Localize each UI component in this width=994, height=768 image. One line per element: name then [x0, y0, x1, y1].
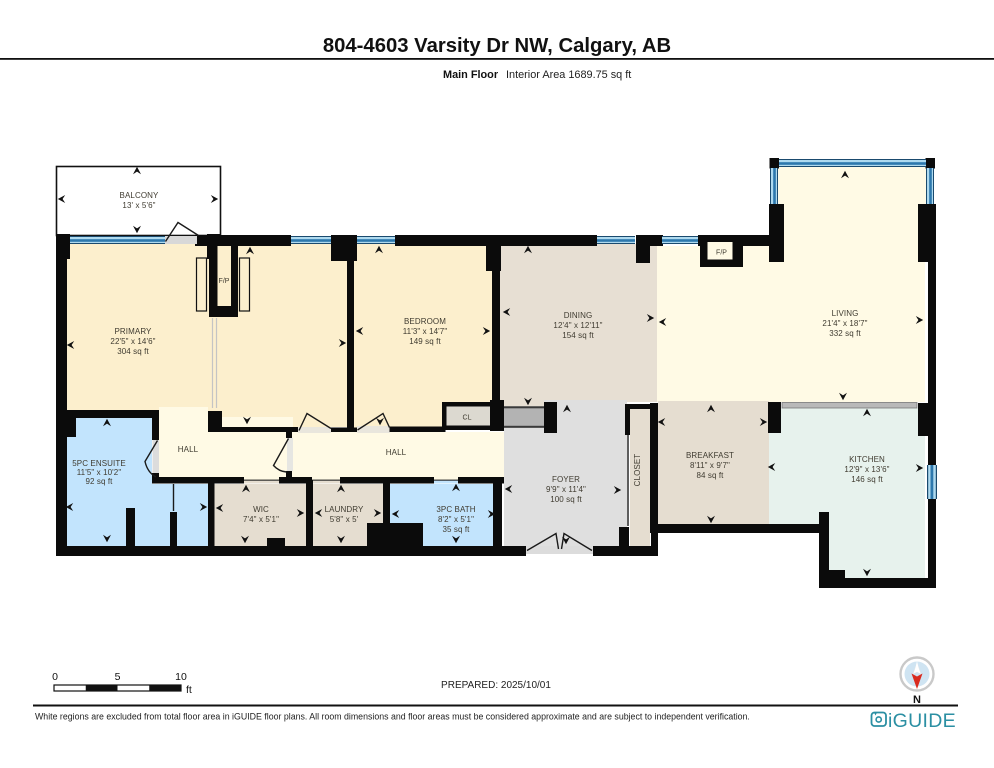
- svg-text:HALL: HALL: [386, 448, 407, 457]
- svg-text:804-4603 Varsity Dr NW, Calgar: 804-4603 Varsity Dr NW, Calgary, AB: [323, 35, 671, 57]
- svg-text:BEDROOM: BEDROOM: [404, 317, 446, 326]
- svg-text:ft: ft: [186, 684, 192, 696]
- svg-text:Interior Area 1689.75 sq ft: Interior Area 1689.75 sq ft: [506, 69, 631, 81]
- svg-text:5PC ENSUITE: 5PC ENSUITE: [72, 459, 126, 468]
- svg-text:HALL: HALL: [178, 445, 199, 454]
- svg-text:5'8" x 5': 5'8" x 5': [330, 515, 359, 524]
- svg-text:CL: CL: [463, 415, 472, 422]
- svg-text:332 sq ft: 332 sq ft: [829, 329, 861, 338]
- svg-text:149 sq ft: 149 sq ft: [409, 337, 441, 346]
- svg-text:CLOSET: CLOSET: [633, 454, 642, 487]
- svg-text:5: 5: [115, 671, 121, 683]
- svg-text:22'5" x 14'6": 22'5" x 14'6": [110, 337, 155, 346]
- svg-text:9'9" x 11'4": 9'9" x 11'4": [546, 485, 586, 494]
- svg-text:White regions are excluded fro: White regions are excluded from total fl…: [35, 712, 750, 722]
- svg-text:7'4" x 5'1": 7'4" x 5'1": [243, 515, 279, 524]
- svg-text:10: 10: [175, 671, 187, 683]
- svg-text:11'5" x 10'2": 11'5" x 10'2": [77, 468, 122, 477]
- svg-text:0: 0: [52, 671, 58, 683]
- svg-text:LAUNDRY: LAUNDRY: [325, 505, 364, 514]
- svg-text:154 sq ft: 154 sq ft: [562, 331, 594, 340]
- svg-text:12'9" x 13'6": 12'9" x 13'6": [844, 465, 889, 474]
- svg-text:92 sq ft: 92 sq ft: [85, 477, 113, 486]
- svg-text:LIVING: LIVING: [832, 309, 859, 318]
- svg-text:Main Floor: Main Floor: [443, 69, 499, 81]
- svg-text:iGUIDE: iGUIDE: [888, 710, 956, 732]
- svg-text:100 sq ft: 100 sq ft: [550, 495, 582, 504]
- svg-text:146 sq ft: 146 sq ft: [851, 475, 883, 484]
- svg-text:12'4" x 12'11": 12'4" x 12'11": [553, 321, 602, 330]
- svg-text:13' x 5'6": 13' x 5'6": [122, 201, 155, 210]
- svg-text:KITCHEN: KITCHEN: [849, 455, 885, 464]
- svg-text:FOYER: FOYER: [552, 475, 580, 484]
- svg-text:8'2" x 5'1": 8'2" x 5'1": [438, 515, 474, 524]
- svg-text:F/P: F/P: [716, 250, 727, 257]
- svg-text:8'11" x 9'7": 8'11" x 9'7": [690, 461, 730, 470]
- svg-text:F/P: F/P: [219, 278, 230, 285]
- svg-text:3PC BATH: 3PC BATH: [436, 505, 475, 514]
- svg-text:BREAKFAST: BREAKFAST: [686, 451, 734, 460]
- svg-text:PRIMARY: PRIMARY: [114, 327, 152, 336]
- svg-text:35 sq ft: 35 sq ft: [442, 525, 470, 534]
- svg-text:84 sq ft: 84 sq ft: [696, 471, 724, 480]
- svg-text:N: N: [913, 694, 921, 706]
- svg-text:PREPARED: 2025/10/01: PREPARED: 2025/10/01: [441, 680, 551, 691]
- svg-text:304 sq ft: 304 sq ft: [117, 347, 149, 356]
- svg-text:WIC: WIC: [253, 505, 269, 514]
- svg-text:11'3" x 14'7": 11'3" x 14'7": [403, 327, 448, 336]
- svg-text:BALCONY: BALCONY: [120, 191, 159, 200]
- svg-text:DINING: DINING: [564, 311, 593, 320]
- svg-text:21'4" x 18'7": 21'4" x 18'7": [822, 319, 867, 328]
